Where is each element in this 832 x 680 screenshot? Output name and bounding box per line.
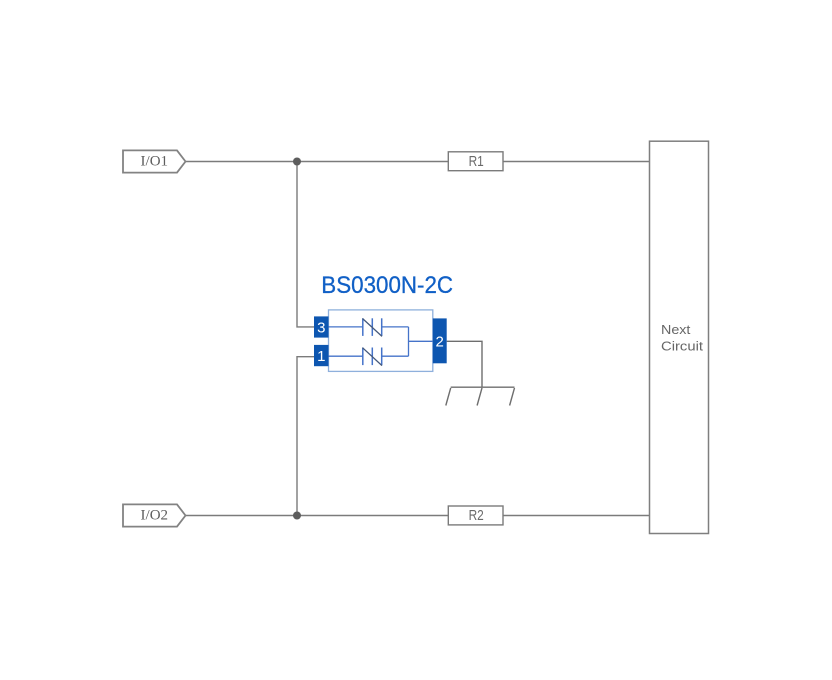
svg-text:I/O2: I/O2 xyxy=(141,508,169,524)
svg-text:I/O1: I/O1 xyxy=(141,154,169,170)
svg-text:1: 1 xyxy=(317,348,325,365)
svg-text:BS0300N-2C: BS0300N-2C xyxy=(321,272,453,299)
svg-text:3: 3 xyxy=(317,319,325,336)
svg-text:Circuit: Circuit xyxy=(661,338,703,353)
svg-text:R1: R1 xyxy=(469,154,484,170)
svg-text:Next: Next xyxy=(661,322,691,337)
svg-text:R2: R2 xyxy=(469,508,484,524)
svg-text:2: 2 xyxy=(436,334,444,351)
